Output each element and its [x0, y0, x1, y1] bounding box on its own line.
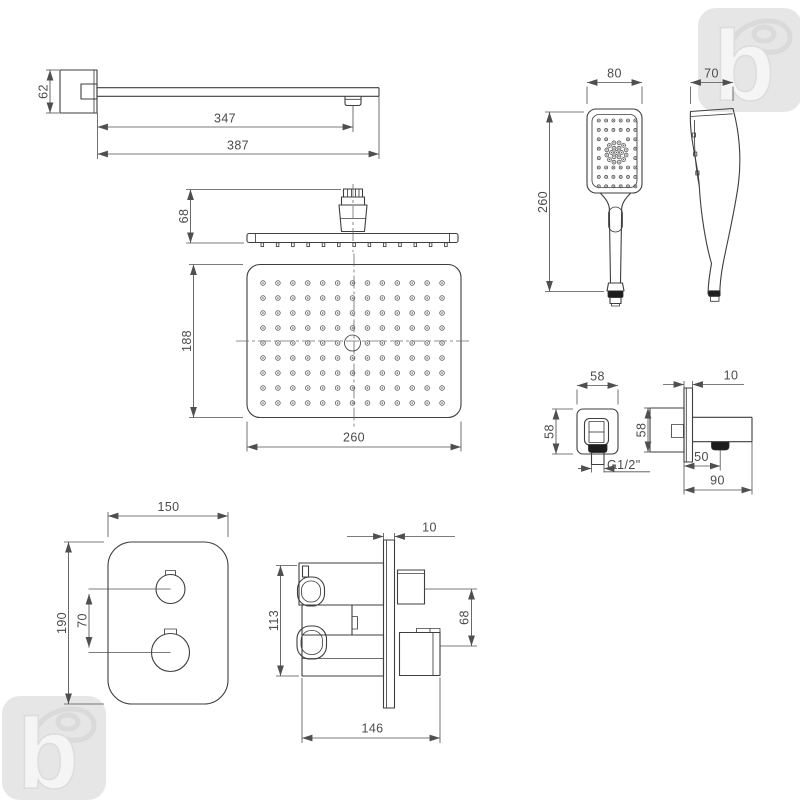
dim-label-elbow-width: 58 — [590, 370, 605, 384]
rain-head-plan-view: 188 260 — [180, 254, 472, 452]
dim-label-elbow-side-height: 58 — [635, 423, 649, 438]
dim-label-hand-length: 260 — [536, 191, 550, 213]
dim-label-head-width: 260 — [343, 431, 365, 445]
elbow-side-outlet — [712, 442, 730, 450]
hand-shower-button — [609, 207, 623, 232]
dim-label-mixer-outlets: 68 — [458, 610, 472, 625]
watermark-logo-bottom-left: b — [2, 696, 106, 800]
mixer-side-knob-top — [398, 570, 425, 604]
dim-label-elbow-plate: 10 — [724, 369, 739, 383]
dim-label-head-height: 68 — [177, 209, 191, 224]
dim-label-elbow-offset: 50 — [694, 450, 709, 464]
dim-label-mixer-plate: 10 — [422, 521, 437, 535]
technical-drawing-page: b b 62 347 387 — [0, 0, 800, 800]
hand-shower-nozzles — [597, 119, 637, 188]
shower-arm-view: 62 347 387 — [37, 70, 380, 159]
mixer-plate — [108, 542, 228, 704]
dim-label-hand-depth: 70 — [704, 67, 719, 81]
dim-label-mixer-body: 113 — [267, 610, 281, 631]
dim-label-mixer-height: 190 — [55, 612, 69, 634]
dim-label-head-depth: 188 — [180, 330, 194, 352]
head-nozzle-teeth — [261, 243, 447, 247]
elbow-outlet — [589, 445, 608, 453]
watermark-letter: b — [713, 10, 774, 122]
dim-label-arm-height: 62 — [37, 84, 51, 99]
mixer-front-view: 70 190 150 — [55, 500, 228, 704]
head-center-outlet — [345, 335, 361, 351]
wall-elbow-side-view: 10 58 50 90 — [635, 369, 753, 495]
dim-label-elbow-height: 58 — [543, 424, 557, 439]
head-nozzle-grid — [261, 281, 445, 406]
dim-label-mixer-depth: 146 — [361, 722, 383, 736]
mixer-side-view: 10 113 68 146 — [267, 521, 477, 744]
arm-nozzle — [345, 96, 361, 105]
watermark-letter: b — [17, 698, 78, 800]
mixer-plate-side — [384, 540, 395, 708]
dim-label-mixer-width: 150 — [157, 500, 179, 514]
shower-set-diagram: b b 62 347 387 — [0, 0, 800, 800]
hand-shower-handle — [600, 193, 631, 283]
mixer-side-knob-bottom — [400, 633, 441, 676]
dim-label-elbow-thread: G1/2" — [607, 458, 641, 472]
hand-shower-front-view: 80 260 — [536, 67, 642, 307]
dim-label-hand-width: 80 — [607, 67, 622, 81]
head-plate-side — [247, 234, 458, 243]
rain-head-side-view: 68 — [177, 184, 458, 252]
dim-label-arm-to-nozzle: 347 — [214, 112, 236, 126]
wall-elbow-front-view: G1/2" 58 58 — [543, 370, 651, 473]
watermark-logo-top-right: b — [698, 8, 800, 122]
dim-label-mixer-spacing: 70 — [76, 613, 90, 628]
dim-label-arm-total: 387 — [227, 139, 249, 153]
dim-label-elbow-projection: 90 — [710, 474, 725, 488]
